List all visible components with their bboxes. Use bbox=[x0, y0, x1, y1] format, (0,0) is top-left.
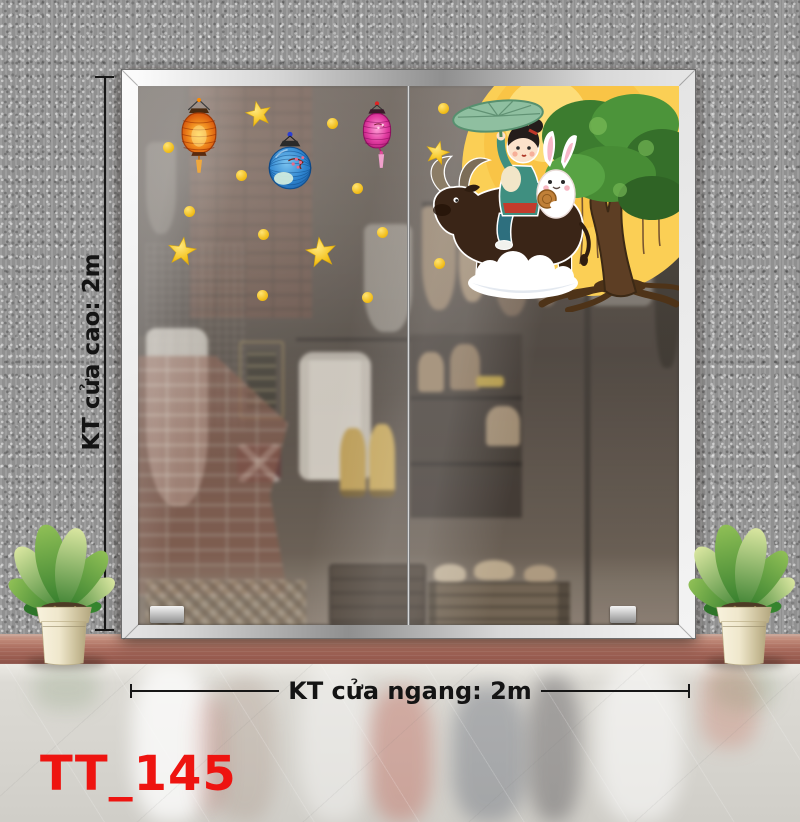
star-decal bbox=[165, 234, 199, 268]
door-glass bbox=[138, 86, 679, 625]
frame-mitre bbox=[123, 623, 140, 640]
product-image: KT cửa cao: 2m KT cửa ngang: 2m TT_145 bbox=[0, 0, 800, 822]
orange-lantern-decal bbox=[176, 92, 222, 180]
gold-dot-decal bbox=[377, 227, 388, 238]
patch-fitting-left bbox=[150, 606, 184, 623]
gold-dot-decal bbox=[327, 118, 338, 129]
mid-autumn-scene-decal bbox=[420, 86, 679, 312]
frame-mitre bbox=[121, 69, 138, 86]
frame-mitre bbox=[679, 69, 696, 86]
patch-fitting-right bbox=[610, 606, 636, 623]
pink-lantern-decal bbox=[357, 94, 397, 176]
blue-lantern-decal bbox=[266, 126, 314, 202]
skirting-strip bbox=[0, 634, 800, 664]
door-divider bbox=[407, 86, 410, 625]
gold-dot-decal bbox=[438, 103, 449, 114]
star-decal bbox=[242, 97, 274, 129]
gold-dot-decal bbox=[257, 290, 268, 301]
gold-dot-decal bbox=[236, 170, 247, 181]
width-dimension-tick-right bbox=[688, 684, 690, 698]
height-dimension-label: KT cửa cao: 2m bbox=[79, 240, 105, 464]
gold-dot-decal bbox=[434, 258, 445, 269]
gold-dot-decal bbox=[362, 292, 373, 303]
width-dimension-line bbox=[132, 690, 279, 692]
star-decal bbox=[303, 234, 339, 270]
gold-dot-decal bbox=[258, 229, 269, 240]
width-dimension-line bbox=[541, 690, 688, 692]
height-dimension-tick-top bbox=[95, 76, 114, 78]
potted-plant-right bbox=[688, 514, 800, 666]
product-code-label: TT_145 bbox=[40, 746, 237, 802]
gold-dot-decal bbox=[352, 183, 363, 194]
gold-dot-decal bbox=[184, 206, 195, 217]
width-dimension: KT cửa ngang: 2m bbox=[130, 673, 690, 709]
width-dimension-label: KT cửa ngang: 2m bbox=[279, 677, 541, 705]
glass-door-frame bbox=[122, 70, 695, 638]
gold-dot-decal bbox=[163, 142, 174, 153]
potted-plant-left bbox=[8, 514, 120, 666]
